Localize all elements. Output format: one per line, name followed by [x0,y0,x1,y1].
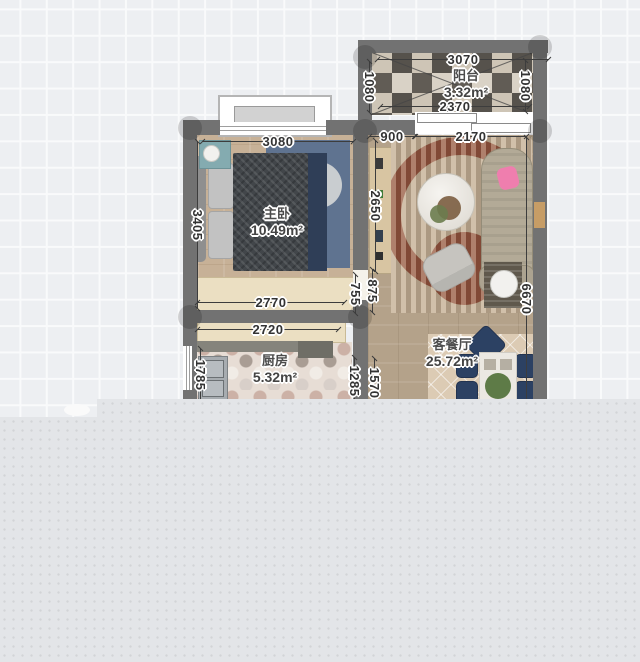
bed-headboard[interactable] [197,156,206,262]
wall-joint-handle[interactable] [528,35,552,59]
console-item [376,252,383,260]
stove[interactable] [298,341,333,358]
bedroom-window[interactable] [220,122,326,135]
wall[interactable] [183,310,368,323]
room-label-master-bedroom: 主卧 10.49m² [251,206,303,240]
wardrobe[interactable] [197,277,355,312]
room-label-kitchen: 厨房 5.32m² [253,353,297,387]
room-name: 阳台 [444,68,488,84]
panel-corner-bump [64,404,90,416]
kitchen-cabinet[interactable] [197,322,346,343]
wall[interactable] [358,40,548,53]
wall-joint-handle[interactable] [178,305,202,329]
room-area: 5.32m² [253,369,297,387]
wall-joint-handle[interactable] [353,119,377,143]
console-plant [376,190,383,198]
balcony-sliding-door[interactable] [415,112,533,134]
dining-table[interactable] [479,352,517,404]
bed-pillow[interactable] [208,211,234,259]
room-area: 25.72m² [426,353,478,371]
room-area: 3.32m² [444,84,488,102]
wall-joint-handle[interactable] [178,116,202,140]
dining-plant [485,373,511,399]
sliding-door-panel [417,113,477,123]
room-name: 主卧 [251,206,303,222]
wall-accent-strip [534,202,545,228]
bottom-overlay-panel [0,399,640,662]
floor-lamp[interactable] [490,270,518,298]
room-name: 厨房 [253,353,297,369]
wall-joint-handle[interactable] [348,305,372,329]
hallway-door-opening[interactable] [353,270,368,300]
console-item [376,230,383,242]
room-label-balcony: 阳台 3.32m² [444,68,488,102]
table-plant [430,205,448,223]
sink-unit[interactable] [198,356,228,401]
bedroom-lamp[interactable] [203,145,220,162]
wall-joint-handle[interactable] [353,45,377,69]
console-item [376,158,383,169]
bed-pillow[interactable] [208,163,234,209]
kitchen-window[interactable] [183,346,192,390]
placemat [484,359,496,370]
floorplan-editor-canvas: 3070237010801080308090021703405265075587… [0,0,640,662]
room-label-living-dining: 客餐厅 25.72m² [426,337,478,371]
sliding-door-panel [471,123,531,133]
bed-runner[interactable] [306,153,327,271]
room-name: 客餐厅 [426,337,478,353]
room-area: 10.49m² [251,222,303,240]
placemat [500,359,512,370]
wall-joint-handle[interactable] [528,119,552,143]
tv-console[interactable] [369,147,392,274]
